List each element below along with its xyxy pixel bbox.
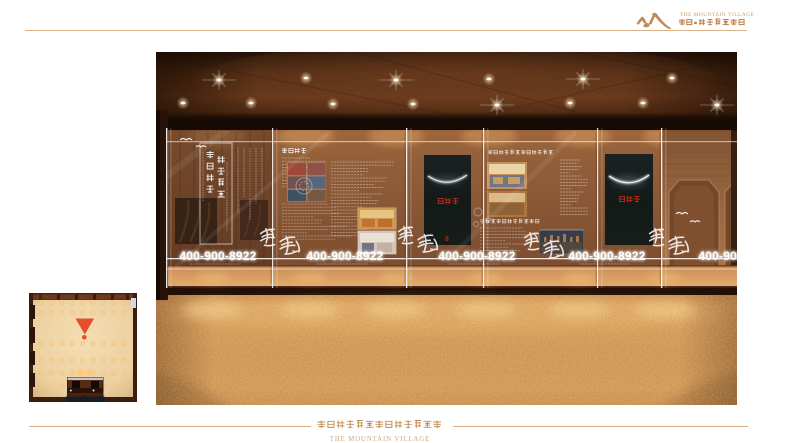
svg-text:400-900-8922: 400-900-8922	[306, 249, 383, 263]
svg-text:400-900-8922: 400-900-8922	[438, 249, 515, 263]
svg-text:400-900-8922: 400-900-8922	[179, 249, 256, 263]
svg-text:THE MOUNTAIN VILLAGE: THE MOUNTAIN VILLAGE	[680, 12, 755, 18]
svg-text:THE MOUNTAIN VILLAGE: THE MOUNTAIN VILLAGE	[330, 436, 430, 443]
svg-text:400-900-8922: 400-900-8922	[568, 249, 645, 263]
svg-text:400-900-8922: 400-900-8922	[698, 249, 737, 263]
